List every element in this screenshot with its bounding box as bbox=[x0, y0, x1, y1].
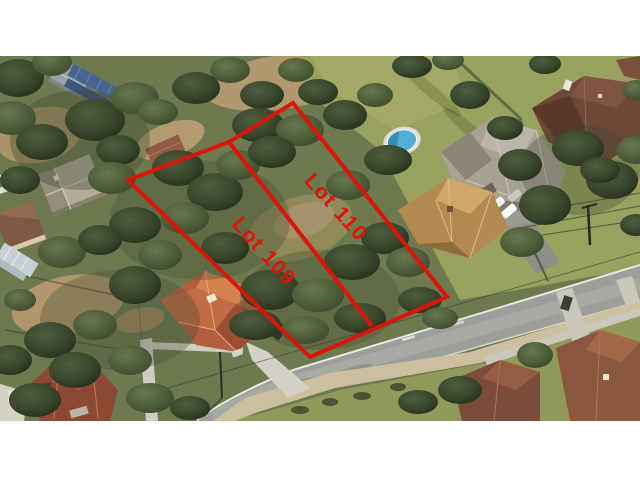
listing-photo-frame: Lot 109 Lot 110 bbox=[0, 0, 640, 480]
brown-roof-house-bottom-right-2 bbox=[556, 330, 640, 421]
bottom-letterbox-bar bbox=[0, 421, 640, 480]
aerial-photo-content: Lot 109 Lot 110 bbox=[0, 44, 640, 421]
top-letterbox-bar bbox=[0, 0, 640, 56]
aerial-photo: Lot 109 Lot 110 bbox=[0, 0, 640, 480]
